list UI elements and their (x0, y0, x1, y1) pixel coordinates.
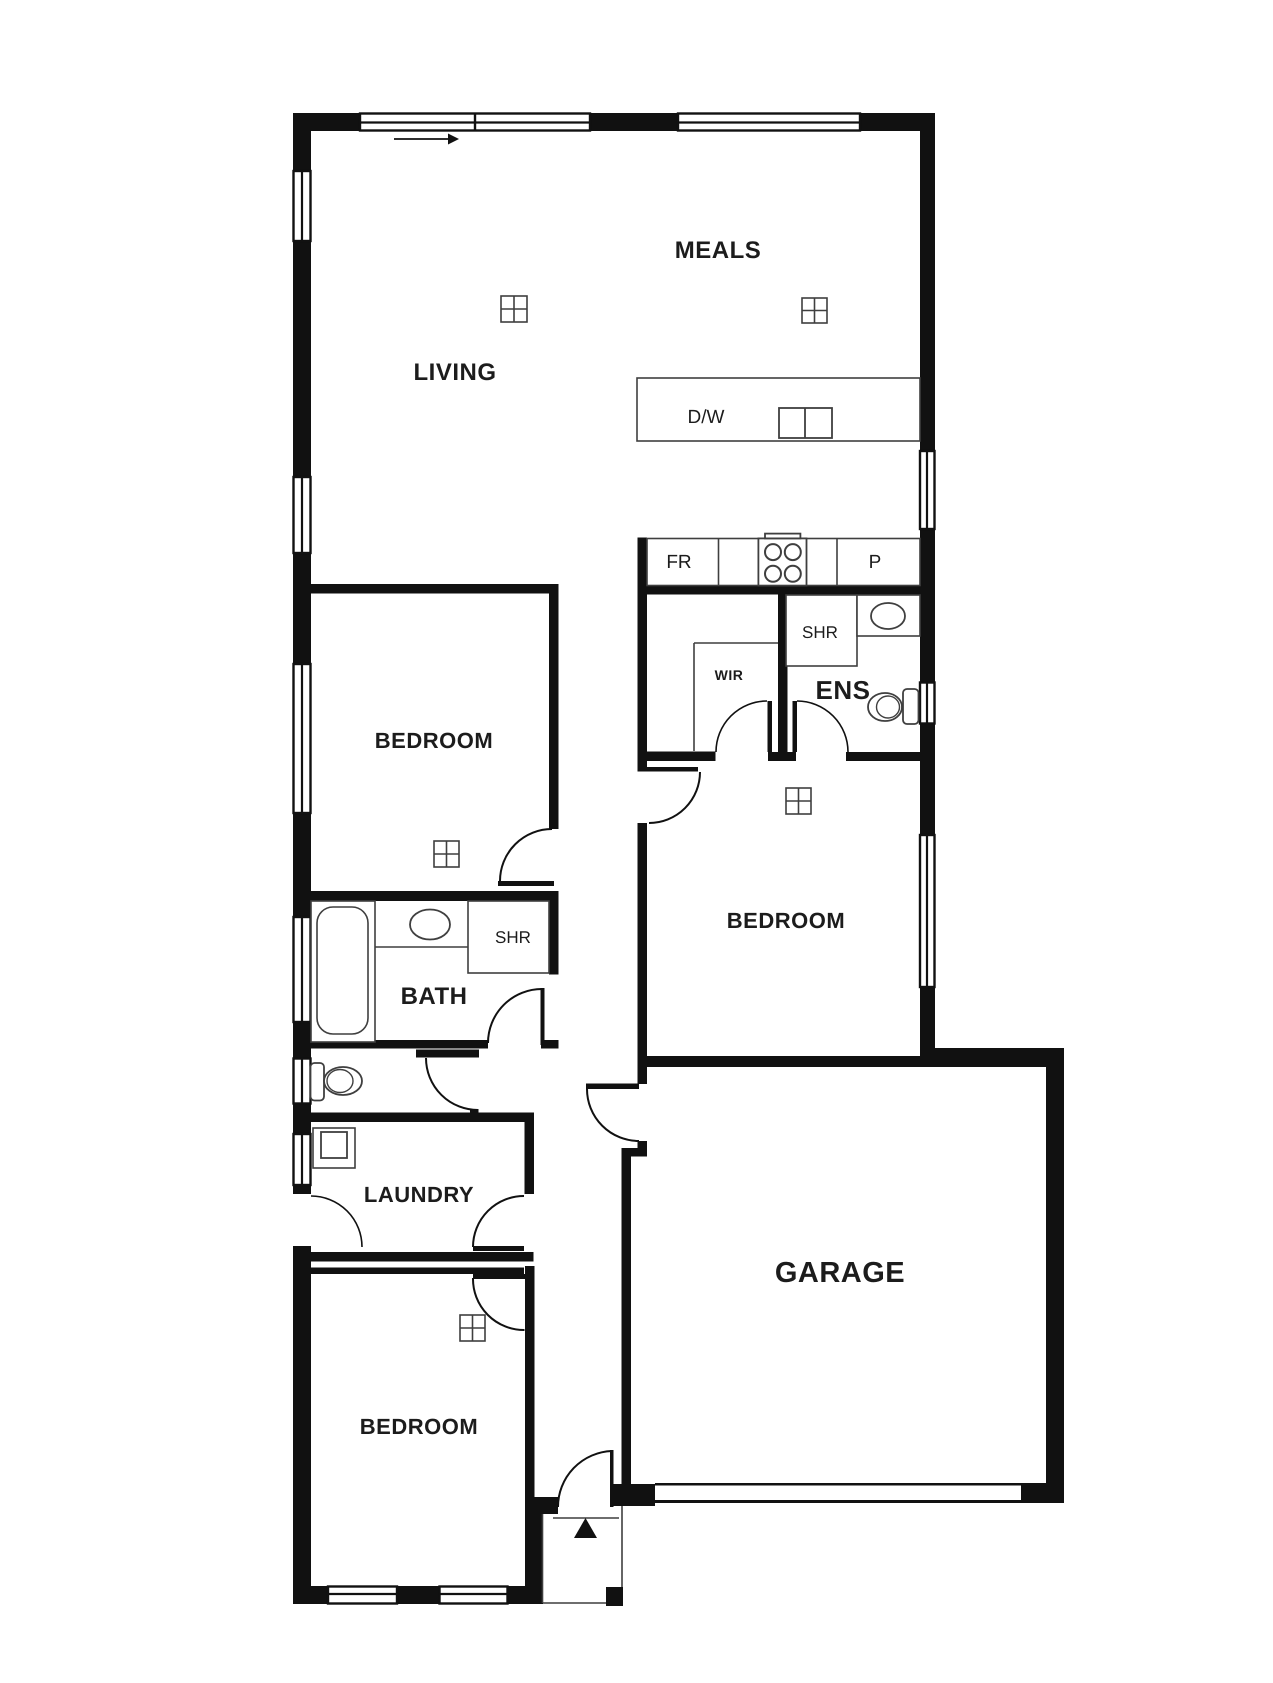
svg-text:BATH: BATH (401, 983, 468, 1010)
svg-text:D/W: D/W (688, 407, 725, 428)
svg-text:BEDROOM: BEDROOM (727, 908, 845, 933)
svg-text:MEALS: MEALS (675, 237, 762, 264)
svg-text:P: P (869, 552, 882, 573)
svg-text:BEDROOM: BEDROOM (360, 1414, 478, 1439)
svg-text:GARAGE: GARAGE (775, 1257, 905, 1289)
svg-text:LIVING: LIVING (413, 359, 496, 386)
svg-text:BEDROOM: BEDROOM (375, 728, 493, 753)
svg-text:SHR: SHR (495, 928, 531, 947)
svg-text:FR: FR (666, 552, 691, 573)
svg-text:ENS: ENS (816, 675, 871, 705)
svg-text:SHR: SHR (802, 623, 838, 642)
svg-text:WIR: WIR (715, 667, 744, 683)
svg-text:LAUNDRY: LAUNDRY (364, 1182, 474, 1207)
